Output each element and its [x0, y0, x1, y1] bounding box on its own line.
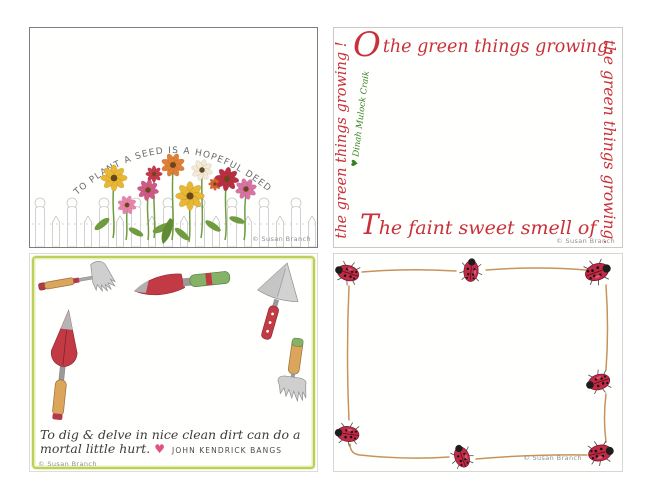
quote-left-vertical: the green things growing ! [334, 40, 350, 240]
ladybug-icon [586, 438, 616, 468]
quote-top-line: Othe green things growing. [353, 30, 614, 60]
hand-rake-down-icon [276, 336, 314, 402]
artist-signature: © Susan Branch [556, 237, 615, 245]
ladybug-icons [334, 255, 616, 471]
quote-right-vertical: the green things growing. [600, 36, 618, 248]
hand-rake-icon [36, 259, 116, 303]
seed-card-art: TO PLANT A SEED IS A HOPEFUL DEED [30, 28, 317, 247]
trowel-icon [133, 268, 230, 297]
ladybug-icon [334, 257, 362, 287]
card-ladybugs: © Susan Branch [333, 253, 623, 472]
pointed-trowel-icon [44, 309, 81, 421]
ladybug-border-art [334, 254, 622, 471]
ladybug-icon [447, 441, 476, 470]
author-attribution: ♥ Dinah Mulock Craik [348, 57, 373, 181]
quote-line-2: mortal little hurt. ♥ JOHN KENDRICK BANG… [40, 442, 312, 458]
artist-signature: © Susan Branch [38, 460, 97, 468]
ladybug-icon [583, 367, 614, 397]
quote-line-1: To dig & delve in nice clean dirt can do… [40, 428, 312, 442]
quote-top-rest: the green things growing. [383, 37, 614, 57]
ladybug-icon [459, 257, 484, 282]
card-green-things: Othe green things growing. the green thi… [333, 27, 623, 248]
triangle-trowel-icon [245, 257, 307, 345]
card-garden-tools: To dig & delve in nice clean dirt can do… [29, 253, 318, 472]
notecard-sheet: TO PLANT A SEED IS A HOPEFUL DEED [0, 0, 650, 502]
card-seed-fence: TO PLANT A SEED IS A HOPEFUL DEED [29, 27, 318, 248]
ladybug-icon [581, 255, 615, 288]
quote-block: To dig & delve in nice clean dirt can do… [40, 428, 312, 458]
artist-signature: © Susan Branch [523, 454, 582, 462]
quote-attribution: JOHN KENDRICK BANGS [172, 446, 282, 455]
heart-icon: ♥ [154, 442, 165, 456]
twig-border-lines [348, 268, 608, 459]
ladybug-icon [334, 420, 361, 447]
artist-signature: © Susan Branch [252, 235, 311, 243]
